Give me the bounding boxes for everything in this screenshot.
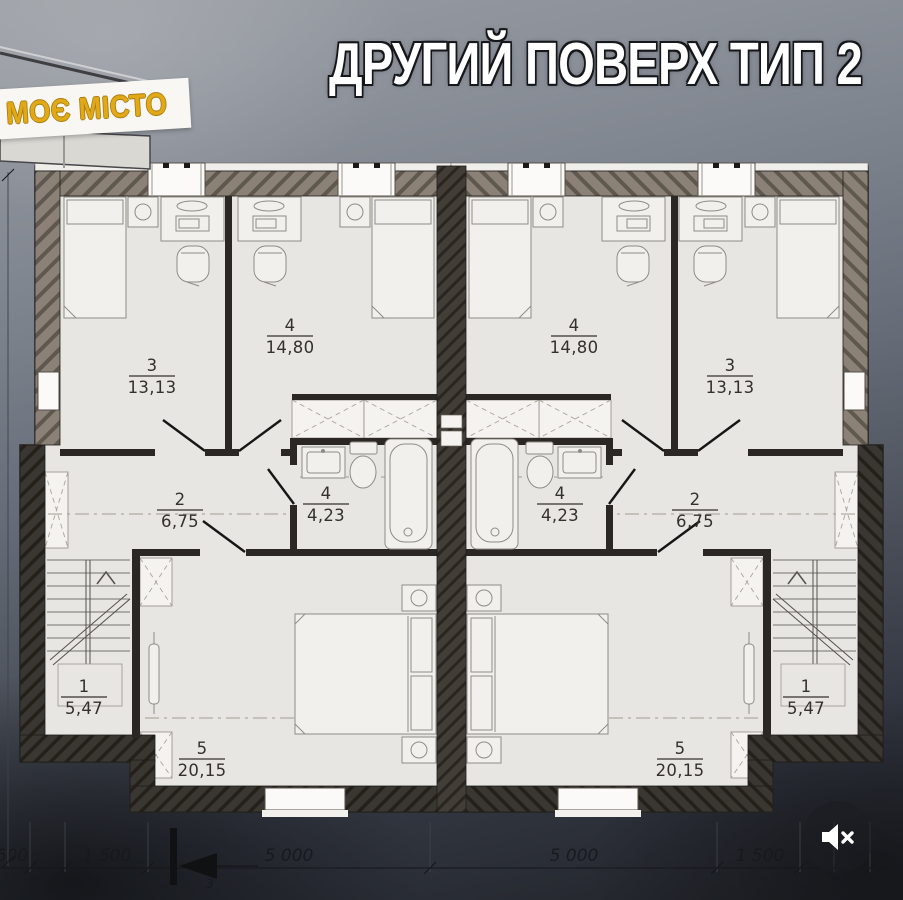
building-sketch (0, 0, 903, 900)
speaker-muted-icon (821, 822, 855, 852)
mute-button[interactable] (802, 801, 874, 873)
brand-text: МОЄ МІСТО (5, 86, 168, 132)
page-title: ДРУГИЙ ПОВЕРХ ТИП 2 (329, 34, 841, 96)
